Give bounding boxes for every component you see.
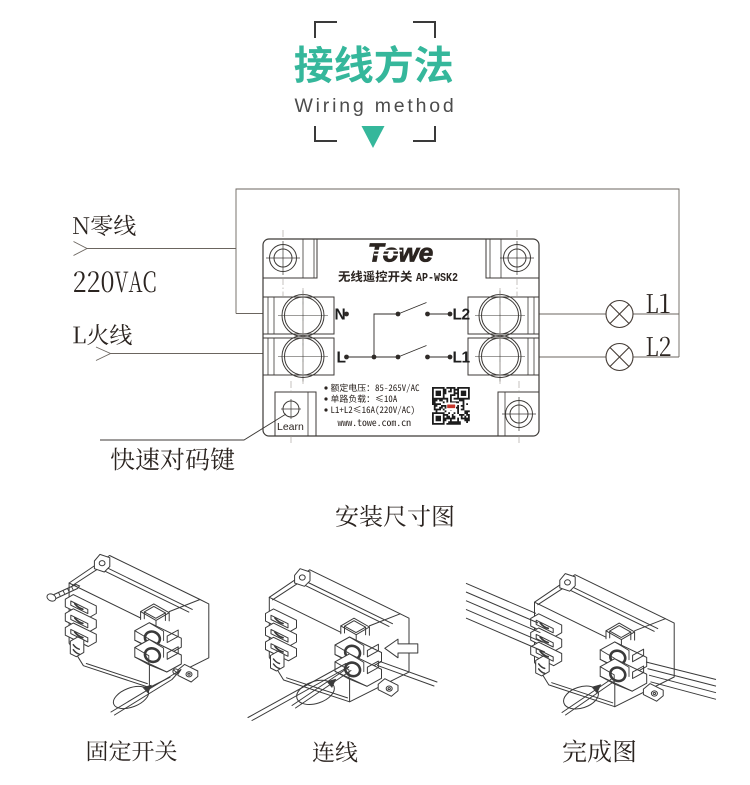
svg-text:Towe: Towe (368, 238, 433, 268)
svg-text:L1: L1 (453, 350, 471, 367)
svg-text:N: N (335, 307, 346, 324)
svg-text:L: L (337, 350, 346, 367)
svg-text:Wiring method: Wiring method (294, 95, 456, 117)
svg-text:L2: L2 (453, 307, 470, 324)
svg-text:Learn: Learn (277, 421, 304, 433)
svg-text:AP-WSK2: AP-WSK2 (416, 272, 458, 285)
